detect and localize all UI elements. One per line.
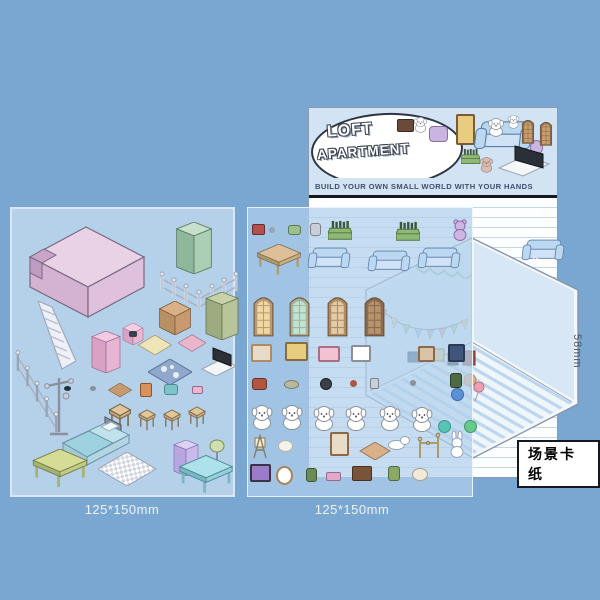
bottle-crate-sticker xyxy=(328,220,352,242)
wardrobe-sticker xyxy=(205,292,239,340)
berry-sticker xyxy=(350,380,357,387)
bottle-crate-sticker xyxy=(396,221,420,243)
puppy-sticker xyxy=(312,405,336,431)
toy-truck-sticker xyxy=(352,466,372,481)
bead-sticker xyxy=(410,380,416,386)
middle-sheet-size-caption: 125*150mm xyxy=(287,502,417,517)
stool-sticker xyxy=(163,409,181,432)
sideboard-cabinet-sticker xyxy=(85,331,127,373)
arched-window-sticker xyxy=(326,290,349,338)
trumpet-sticker xyxy=(252,378,267,390)
puppy-sticker xyxy=(378,405,402,431)
wall-shelf-sticker xyxy=(108,383,132,397)
product-photo: LOFT APARTMENT BUILD YOUR OWN SMALL WORL… xyxy=(0,0,600,600)
frying-pan-sticker xyxy=(320,378,332,390)
refrigerator-sticker xyxy=(175,222,213,274)
bunny-on-sofa-icon xyxy=(507,114,520,129)
picture-frame-purple-sticker xyxy=(250,464,271,482)
puppy-sticker xyxy=(410,406,434,432)
arched-window-icon xyxy=(521,110,535,150)
laptop-sticker xyxy=(200,347,238,381)
tagline: BUILD YOUR OWN SMALL WORLD WITH YOUR HAN… xyxy=(309,178,557,195)
puppy-on-sofa-icon xyxy=(487,117,505,137)
armchair-icon xyxy=(429,126,448,142)
teddy-bear-sticker xyxy=(451,219,469,241)
storage-box-sticker xyxy=(155,301,195,335)
area-rug-sticker xyxy=(138,335,172,355)
stool-sticker xyxy=(188,406,206,429)
left-sticker-sheet xyxy=(10,207,235,497)
arched-window-icon xyxy=(539,112,553,152)
camera-sticker xyxy=(252,224,265,235)
toy-teal-sticker xyxy=(164,384,178,395)
pumpkin-sticker xyxy=(412,468,428,481)
title-line1: LOFT xyxy=(326,120,373,141)
puppy-dog-icon xyxy=(479,156,494,173)
sofa-sticker xyxy=(306,244,352,276)
puppy-sticker xyxy=(344,405,368,431)
sofa-sticker xyxy=(366,247,412,279)
coat-rack-sticker xyxy=(414,432,444,460)
jar-small-sticker xyxy=(370,378,379,389)
arched-window-sticker xyxy=(252,290,275,338)
toy-pink-sticker xyxy=(192,386,203,394)
bottle-crate-icon xyxy=(461,148,480,166)
middle-sticker-sheet xyxy=(247,207,473,497)
flower-pot-sticker xyxy=(388,466,400,481)
picture-frame-sticker xyxy=(418,346,435,362)
mirror-frame-sticker xyxy=(330,432,349,456)
puppy-icon xyxy=(413,116,428,133)
puppy-sticker xyxy=(280,404,304,430)
dishes-cup-sticker xyxy=(400,436,410,445)
picture-frame-icon xyxy=(456,114,475,145)
puppy-sticker xyxy=(250,404,274,430)
card-height-label: 58mm xyxy=(571,334,583,369)
dot-blue-sticker xyxy=(451,388,464,401)
arched-window-sticker xyxy=(363,290,386,338)
bunny-sticker xyxy=(448,430,466,458)
coffee-table-sticker xyxy=(178,455,234,495)
wall-clock-sticker xyxy=(276,466,293,485)
scene-card-label: 场景卡纸 xyxy=(517,440,600,488)
egg-sticker xyxy=(278,440,293,452)
picture-frame-sticker xyxy=(318,346,340,362)
stool-sticker xyxy=(138,409,156,432)
bench-sticker xyxy=(28,449,92,489)
microwave-window xyxy=(129,331,137,337)
arched-window-sticker xyxy=(288,290,311,338)
wooden-table-sticker xyxy=(256,244,302,276)
picture-frame-sticker xyxy=(285,342,308,361)
book-pink-sticker xyxy=(326,472,341,481)
fish-sticker xyxy=(284,380,299,389)
picture-frame-sticker xyxy=(351,345,371,362)
watering-can-sticker xyxy=(288,225,301,235)
sofa-sticker xyxy=(416,244,462,276)
book-sticker xyxy=(140,383,152,397)
left-sheet-size-caption: 125*150mm xyxy=(57,502,187,517)
easel-chair-sticker xyxy=(250,434,270,460)
spotted-rug-sticker xyxy=(148,359,192,385)
picture-frame-sticker xyxy=(448,344,465,362)
plant-pot-sticker xyxy=(450,373,462,388)
jar-sticker xyxy=(310,223,321,236)
picture-frame-sticker xyxy=(251,344,272,362)
notepad-header: LOFT APARTMENT xyxy=(309,108,557,178)
bead-sticker xyxy=(90,386,96,391)
potted-plant-sticker xyxy=(306,468,317,482)
checkered-rug-sticker xyxy=(98,452,156,486)
shelf-icon xyxy=(397,119,414,132)
bead-sticker xyxy=(269,227,275,233)
